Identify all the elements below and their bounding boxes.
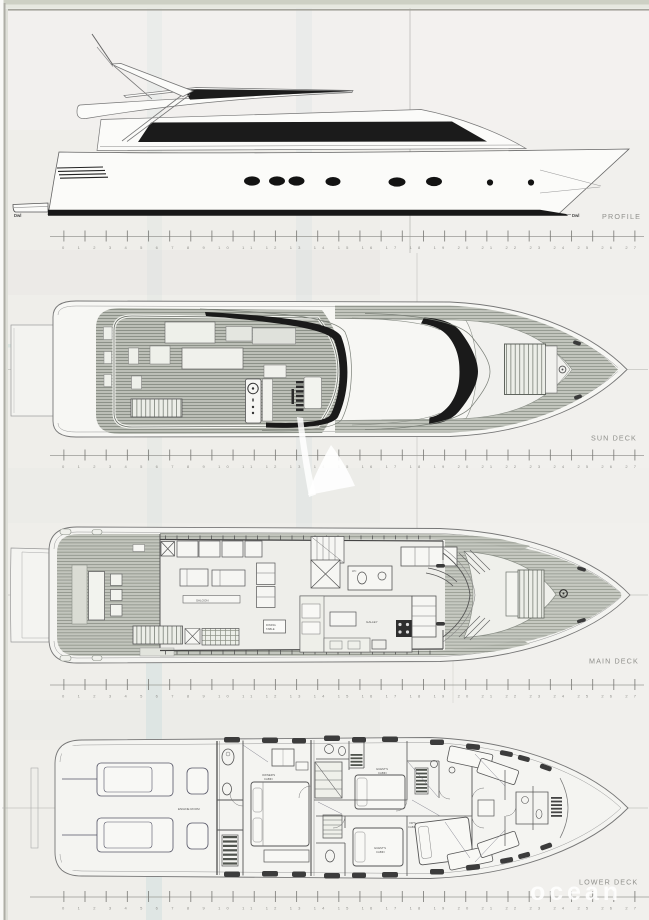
svg-text:CABIN: CABIN xyxy=(376,850,385,854)
svg-text:Dwl: Dwl xyxy=(572,213,579,218)
svg-text:SUN DECK: SUN DECK xyxy=(591,434,637,443)
svg-text:MAIN DECK: MAIN DECK xyxy=(589,657,639,666)
svg-text:GALLEY: GALLEY xyxy=(366,620,378,624)
svg-text:PROFILE: PROFILE xyxy=(602,212,641,221)
svg-text:Dwl: Dwl xyxy=(14,213,21,218)
svg-text:TABLE: TABLE xyxy=(266,627,275,631)
svg-text:ENGINE ROOM: ENGINE ROOM xyxy=(178,807,200,811)
svg-text:SALOON: SALOON xyxy=(196,599,209,603)
svg-text:CABIN: CABIN xyxy=(378,771,387,775)
svg-text:CABIN: CABIN xyxy=(264,777,273,781)
svg-text:WC: WC xyxy=(352,569,356,573)
svg-text:ocean: ocean xyxy=(530,878,618,906)
